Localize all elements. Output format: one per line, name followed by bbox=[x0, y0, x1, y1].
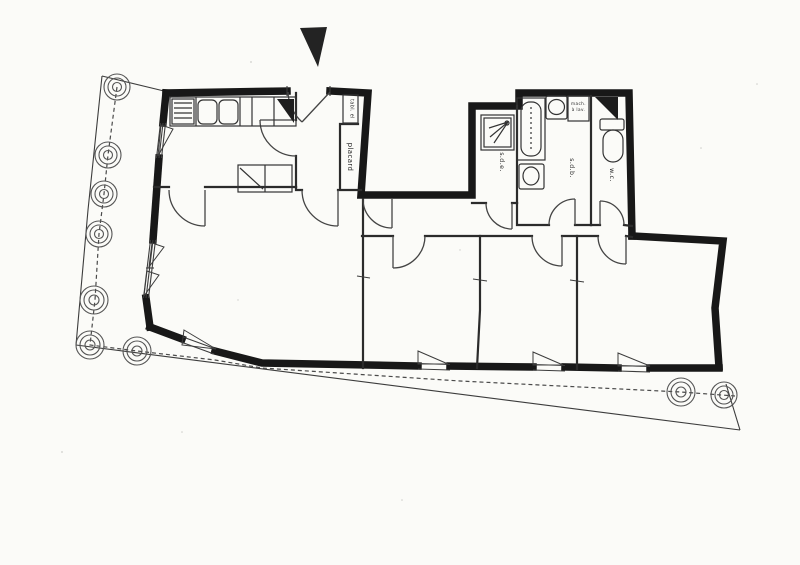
washbasin-lower bbox=[519, 164, 544, 189]
door-bedroom2 bbox=[532, 236, 562, 266]
site-boundary-left bbox=[76, 76, 102, 345]
label-wc: w.c. bbox=[608, 168, 615, 182]
boundary-post bbox=[123, 337, 151, 365]
door-bedroom3 bbox=[598, 236, 626, 264]
label-washing-machine-line1: mach. bbox=[571, 101, 586, 106]
window-flag-icon bbox=[418, 351, 448, 364]
door-bathroom bbox=[549, 199, 575, 225]
window-bedroom3 bbox=[618, 353, 650, 372]
window-flag-icon bbox=[158, 125, 173, 156]
window-flag-icon bbox=[618, 353, 650, 366]
door-shower-room bbox=[486, 203, 512, 229]
label-washing-machine-line2: à lav. bbox=[572, 107, 586, 112]
shower-tray bbox=[481, 115, 514, 150]
kitchen-fixtures bbox=[170, 97, 296, 192]
exterior-walls bbox=[146, 91, 723, 368]
wall-bottom-2 bbox=[565, 367, 618, 368]
scanned-floor-plan-page: tabl. el placard s.d.e. s.d.b. w.c. mach… bbox=[0, 0, 800, 565]
boundary-post bbox=[80, 286, 108, 314]
wall-bedroom3-top-right bbox=[632, 236, 723, 367]
window-flag-icon bbox=[182, 330, 216, 349]
window-bedroom1 bbox=[418, 351, 450, 370]
window-living-diagonal bbox=[181, 330, 216, 354]
window-bedroom2 bbox=[533, 352, 565, 371]
bathtub bbox=[517, 98, 545, 160]
wall-kitchen-top bbox=[166, 91, 287, 93]
wc-duct-corner bbox=[595, 97, 618, 120]
kitchen-sink-right bbox=[219, 100, 238, 124]
site-boundary-top-left bbox=[102, 76, 164, 91]
boundary-post bbox=[711, 382, 737, 408]
site-boundary-bottom bbox=[76, 345, 740, 430]
boundary-post bbox=[667, 378, 695, 406]
kitchen-counter bbox=[170, 97, 296, 126]
wall-sdb-bottom bbox=[517, 203, 591, 225]
washbasin-top bbox=[546, 96, 567, 119]
door-kitchen-living bbox=[169, 190, 205, 226]
kitchen-sink-left bbox=[198, 100, 217, 124]
label-closet: placard bbox=[346, 143, 354, 172]
wall-left-mid bbox=[153, 158, 159, 240]
wall-left-top bbox=[163, 93, 166, 123]
kitchen-hob bbox=[172, 99, 194, 124]
label-bathroom: s.d.b. bbox=[568, 158, 575, 178]
door-entry-living bbox=[302, 190, 338, 226]
boundary-post bbox=[95, 142, 121, 168]
interior-walls bbox=[154, 93, 632, 369]
door-living-corridor bbox=[363, 199, 392, 228]
wall-bottom-diagonal bbox=[150, 327, 182, 339]
window-flag-icon bbox=[533, 352, 563, 365]
site-boundary bbox=[76, 76, 740, 430]
toilet bbox=[600, 119, 624, 162]
floor-plan-drawing: tabl. el placard s.d.e. s.d.b. w.c. mach… bbox=[0, 0, 800, 565]
window-kitchen-left bbox=[157, 123, 174, 158]
wall-bedroom1-bedroom2 bbox=[477, 236, 480, 368]
wall-corridor-bottom bbox=[362, 236, 632, 237]
wall-entry-and-sanitary-block bbox=[330, 91, 632, 236]
entrance-opening bbox=[287, 86, 330, 96]
wall-bottom-4 bbox=[215, 351, 418, 366]
wall-bottom-3 bbox=[450, 366, 533, 367]
wall-sill-ticks bbox=[357, 276, 584, 282]
wall-left-lower bbox=[146, 298, 150, 327]
door-wc bbox=[600, 201, 624, 225]
wall-entry-living bbox=[296, 187, 361, 190]
label-electrical-panel: tabl. el bbox=[349, 99, 355, 119]
sanitary-fixtures bbox=[481, 96, 624, 189]
window-living-left bbox=[144, 240, 165, 298]
wall-wc-bottom bbox=[591, 225, 632, 226]
entrance-arrow-icon bbox=[300, 27, 327, 67]
door-bedroom1 bbox=[393, 236, 425, 268]
label-shower-room: s.d.e. bbox=[498, 152, 505, 172]
